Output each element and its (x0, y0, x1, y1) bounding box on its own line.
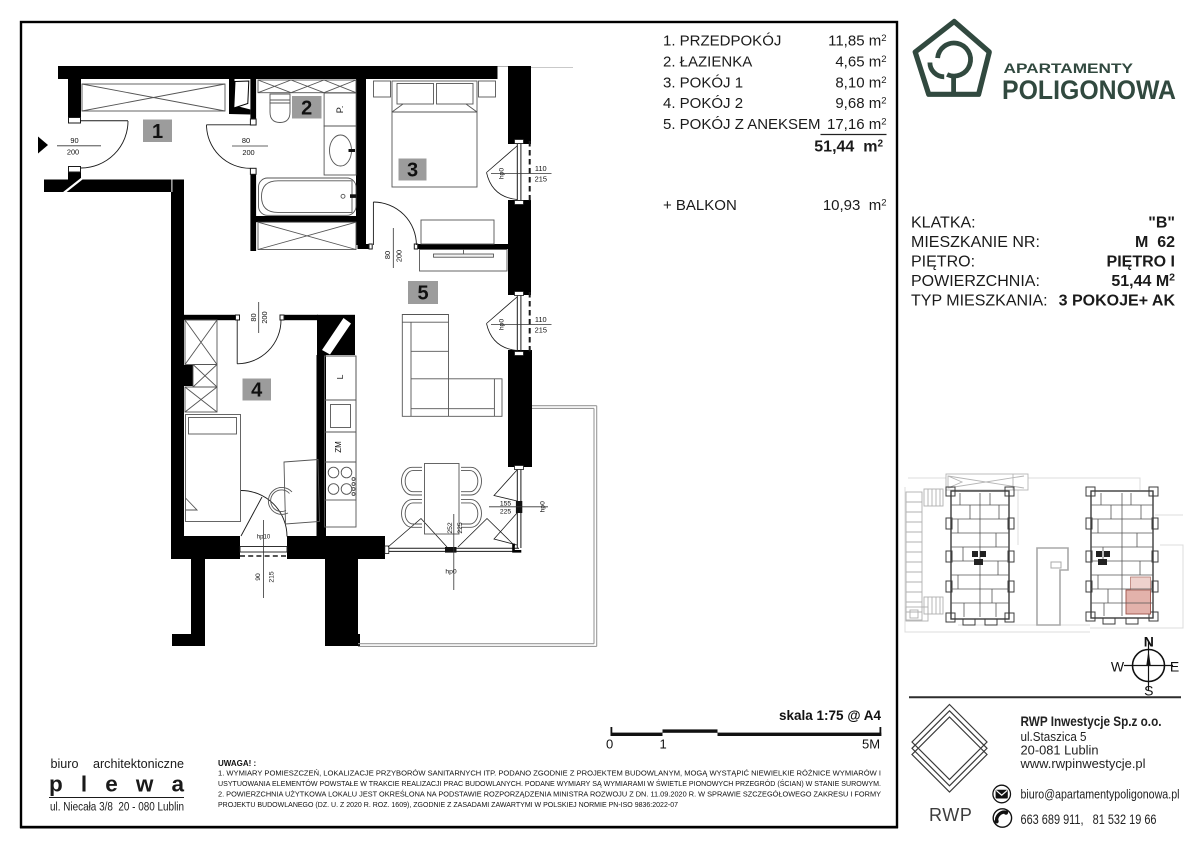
svg-text:5: 5 (417, 283, 428, 305)
svg-text:plewa: plewa (49, 772, 184, 797)
svg-text:3 POKOJE+ AK: 3 POKOJE+ AK (1059, 293, 1176, 310)
svg-text:APARTAMENTY: APARTAMENTY (1004, 61, 1134, 76)
svg-text:80: 80 (242, 136, 250, 145)
svg-text:1: 1 (152, 121, 163, 143)
svg-text:ZM: ZM (334, 441, 343, 453)
svg-text:0: 0 (606, 737, 613, 752)
svg-text:9,68 m2: 9,68 m2 (835, 95, 886, 112)
svg-text:10,93 m2: 10,93 m2 (823, 197, 887, 214)
svg-text:51,44 M2: 51,44 M2 (1111, 272, 1175, 291)
svg-text:90: 90 (255, 573, 262, 581)
svg-text:663 689 911, 81 532 19 66: 663 689 911, 81 532 19 66 (1021, 811, 1157, 827)
svg-text:biuro: biuro (51, 757, 79, 771)
svg-text:200: 200 (67, 148, 79, 157)
svg-text:1. PRZEDPOKÓJ: 1. PRZEDPOKÓJ (663, 33, 781, 50)
svg-text:215: 215 (535, 175, 547, 184)
svg-text:hp0: hp0 (499, 319, 506, 331)
svg-text:225: 225 (500, 508, 512, 515)
svg-text:M 62: M 62 (1135, 234, 1175, 251)
svg-text:RWP: RWP (929, 805, 972, 825)
svg-text:TYP MIESZKANIA:: TYP MIESZKANIA: (911, 293, 1048, 310)
svg-text:252: 252 (447, 522, 454, 534)
svg-text:155: 155 (500, 500, 512, 507)
svg-text:S: S (1144, 683, 1153, 699)
svg-text:"B": "B" (1148, 215, 1175, 232)
svg-text:POLIGONOWA: POLIGONOWA (1002, 75, 1176, 105)
svg-text:225: 225 (457, 522, 464, 534)
svg-text:USYTUOWANIA ELEMENTÓW POWSTAŁE: USYTUOWANIA ELEMENTÓW POWSTAŁE W TRAKCIE… (218, 779, 881, 788)
svg-text:51,44 m2: 51,44 m2 (814, 139, 883, 156)
svg-text:architektoniczne: architektoniczne (93, 757, 184, 771)
svg-text:PIĘTRO I: PIĘTRO I (1107, 254, 1175, 271)
svg-text:110: 110 (535, 164, 547, 173)
svg-text:11,85 m2: 11,85 m2 (828, 33, 886, 50)
svg-text:5. POKÓJ Z ANEKSEM: 5. POKÓJ Z ANEKSEM (663, 116, 821, 133)
svg-text:1: 1 (660, 737, 667, 752)
svg-text:skala 1:75 @ A4: skala 1:75 @ A4 (779, 708, 881, 723)
svg-text:4: 4 (251, 380, 263, 402)
svg-text:110: 110 (535, 315, 547, 324)
svg-text:+ BALKON: + BALKON (663, 197, 737, 214)
svg-text:P.: P. (335, 106, 345, 114)
svg-text:5M: 5M (862, 737, 880, 752)
svg-text:17,16 m2: 17,16 m2 (827, 116, 887, 133)
svg-text:PIĘTRO:: PIĘTRO: (911, 254, 975, 271)
svg-text:L: L (335, 374, 345, 379)
svg-text:RWP Inwestycje Sp.z o.o.: RWP Inwestycje Sp.z o.o. (1021, 713, 1162, 729)
svg-text:2. ŁAZIENKA: 2. ŁAZIENKA (663, 53, 752, 70)
svg-text:2: 2 (301, 98, 312, 120)
svg-text:215: 215 (535, 326, 547, 335)
svg-text:1. WYMIARY POMIESZCZEŃ, LOKALI: 1. WYMIARY POMIESZCZEŃ, LOKALIZACJE PRZY… (218, 769, 881, 778)
svg-text:200: 200 (242, 148, 254, 157)
svg-text:hp0: hp0 (499, 168, 506, 180)
svg-text:POWIERZCHNIA:: POWIERZCHNIA: (911, 273, 1040, 290)
svg-text:4. POKÓJ 2: 4. POKÓJ 2 (663, 95, 743, 112)
svg-text:hp0: hp0 (539, 501, 546, 513)
svg-text:80: 80 (383, 251, 392, 259)
svg-text:biuro@apartamentypoligonowa.pl: biuro@apartamentypoligonowa.pl (1021, 787, 1180, 802)
svg-text:ul. Niecała 3/8 20 - 080 Lubl: ul. Niecała 3/8 20 - 080 Lublin (50, 800, 184, 814)
svg-text:3: 3 (407, 160, 418, 182)
svg-text:W: W (1111, 659, 1125, 675)
svg-text:MIESZKANIE NR:: MIESZKANIE NR: (911, 234, 1040, 251)
svg-text:90: 90 (70, 136, 78, 145)
svg-text:3. POKÓJ 1: 3. POKÓJ 1 (663, 74, 743, 91)
svg-text:4,65 m2: 4,65 m2 (835, 53, 886, 70)
svg-text:200: 200 (260, 311, 269, 323)
svg-text:200: 200 (394, 250, 403, 262)
svg-text:KLATKA:: KLATKA: (911, 215, 976, 232)
svg-text:8,10 m2: 8,10 m2 (835, 74, 886, 91)
svg-text:E: E (1170, 659, 1179, 675)
svg-text:hp0: hp0 (445, 569, 457, 576)
svg-text:N: N (1144, 634, 1154, 650)
svg-text:215: 215 (268, 571, 275, 583)
svg-text:80: 80 (249, 313, 258, 321)
svg-text:www.rwpinwestycje.pl: www.rwpinwestycje.pl (1020, 756, 1146, 771)
svg-text:2. POWIERZCHNIA UŻYTKOWA LOKAL: 2. POWIERZCHNIA UŻYTKOWA LOKALU JEST OKR… (218, 790, 881, 799)
svg-text:PROJEKTU BUDOWLANEGO (DZ. U. Z: PROJEKTU BUDOWLANEGO (DZ. U. Z 2020 R. R… (218, 800, 678, 809)
svg-text:UWAGA! :: UWAGA! : (218, 759, 256, 768)
